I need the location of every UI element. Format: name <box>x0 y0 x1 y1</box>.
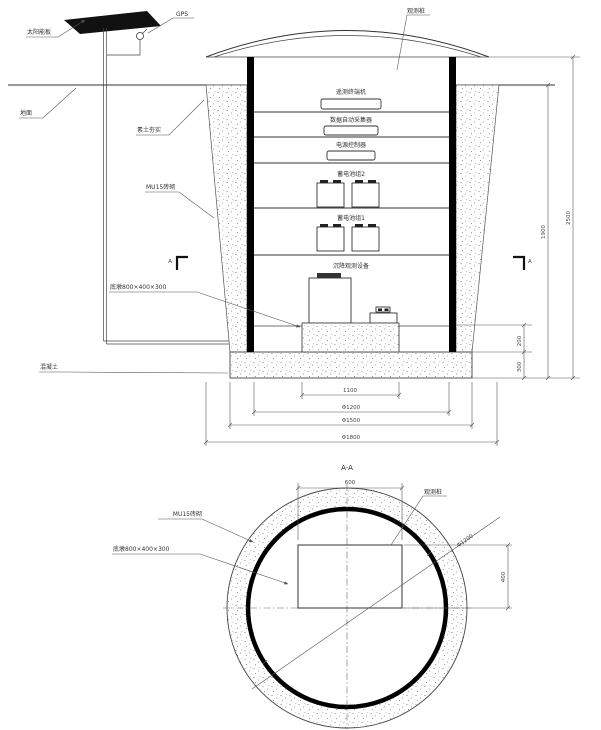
callout-brick-masonry: MU15砖砌 <box>145 183 214 218</box>
section-view: A A 遥测终端机 数据自动采集器 电源控制器 蓄电池组2 蓄电池组1 沉降观测… <box>8 7 580 446</box>
dim-600: 600 <box>345 480 356 486</box>
label-battery-group-2: 蓄电池组2 <box>337 170 365 178</box>
dome-cover <box>206 31 489 58</box>
callout-concrete: 混凝土 <box>39 363 228 373</box>
plan-callout-brick: MU15砖砌 <box>158 510 253 542</box>
callout-compacted-soil: 素土夯实 <box>136 100 204 135</box>
label-plan-pedestal: 底墩800×400×300 <box>113 545 170 553</box>
dim-400: 400 <box>501 571 507 582</box>
plan-title: A-A <box>341 464 353 472</box>
dim-1100: 1100 <box>343 388 357 394</box>
label-plan-observation-post: 观测桩 <box>424 488 442 496</box>
concrete-slab <box>230 352 472 378</box>
label-telemetry-terminal: 遥测终端机 <box>336 88 366 96</box>
label-observation-instrument: 沉降观测设备 <box>333 262 369 270</box>
label-ground: 地面 <box>20 109 32 117</box>
battery-group-1-icon <box>317 224 379 251</box>
plan-view: A-A Φ1200 600 <box>112 464 512 729</box>
shaft-wall-right <box>449 57 456 352</box>
shaft-wall-left <box>247 57 254 352</box>
label-pedestal: 底墩800×400×300 <box>110 283 167 291</box>
technical-drawing: A A 遥测终端机 数据自动采集器 电源控制器 蓄电池组2 蓄电池组1 沉降观测… <box>0 0 601 730</box>
label-brick-masonry: MU15砖砌 <box>146 183 175 191</box>
label-solar-panel: 太阳能板 <box>27 28 51 36</box>
label-observation-post: 观测桩 <box>407 7 425 15</box>
power-controller-box <box>327 151 375 160</box>
observation-instrument-icon <box>309 273 397 323</box>
drawing-page: A A 遥测终端机 数据自动采集器 电源控制器 蓄电池组2 蓄电池组1 沉降观测… <box>0 0 601 730</box>
label-plan-brick: MU15砖砌 <box>173 510 202 518</box>
data-collector-box <box>324 126 378 135</box>
callout-ground: 地面 <box>19 88 76 118</box>
label-battery-group-1: 蓄电池组1 <box>337 214 365 222</box>
section-cut-marker-left: A <box>168 257 188 270</box>
gps-antenna-icon <box>107 29 147 55</box>
label-gps: GPS <box>176 11 188 18</box>
bottom-dimensions: 1100 Φ1200 Φ1500 Φ1800 <box>204 382 499 446</box>
section-marker-letter: A <box>528 259 532 265</box>
callout-pedestal: 底墩800×400×300 <box>109 283 300 327</box>
dim-phi1800: Φ1800 <box>342 435 361 441</box>
dim-2500: 2500 <box>566 211 572 225</box>
dim-200: 200 <box>517 335 523 346</box>
dim-plan-phi1200: Φ1200 <box>456 533 475 549</box>
dim-300: 300 <box>517 361 523 372</box>
section-cut-marker-right: A <box>513 257 532 270</box>
dim-1900: 1900 <box>541 225 547 239</box>
dim-phi1500: Φ1500 <box>342 418 361 424</box>
label-compacted-soil: 素土夯实 <box>137 126 161 134</box>
label-power-controller: 电源控制器 <box>336 141 366 149</box>
battery-group-2-icon <box>317 180 379 207</box>
label-concrete: 混凝土 <box>40 363 58 371</box>
telemetry-terminal-box <box>321 99 381 109</box>
label-data-collector: 数据自动采集器 <box>330 116 372 124</box>
pedestal-block <box>302 323 399 352</box>
section-marker-letter: A <box>168 259 172 265</box>
dim-phi1200: Φ1200 <box>342 405 361 411</box>
